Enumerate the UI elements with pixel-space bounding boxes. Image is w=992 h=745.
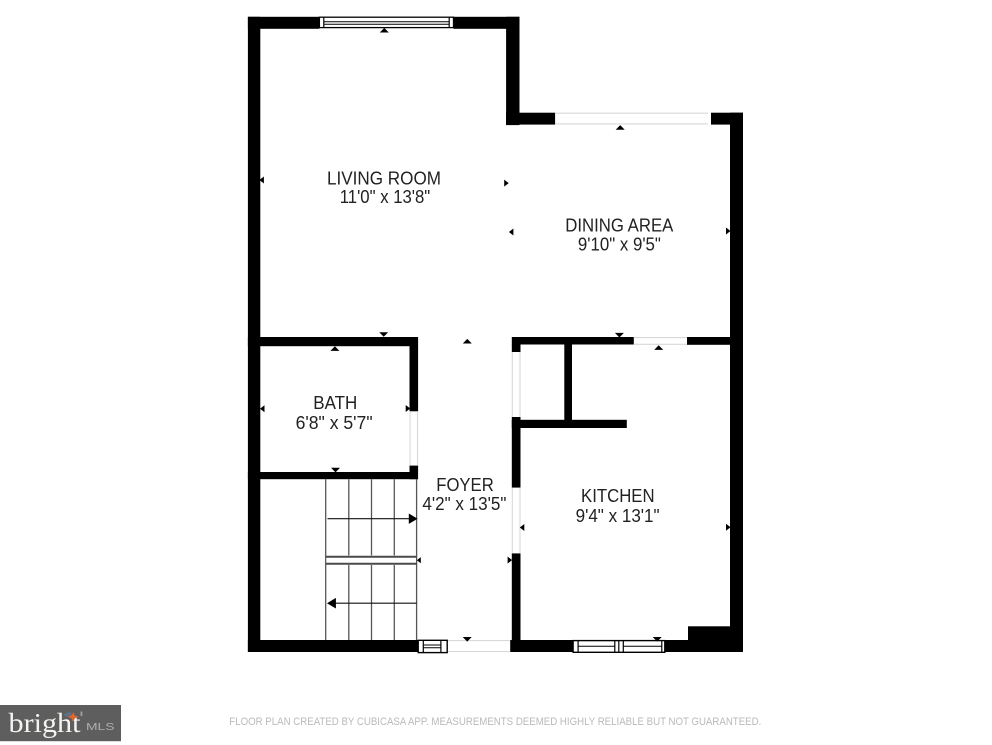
svg-text:4'2" x 13'5": 4'2" x 13'5" xyxy=(422,493,506,514)
svg-text:11'0" x 13'8": 11'0" x 13'8" xyxy=(340,186,431,207)
svg-text:FLOOR PLAN CREATED BY CUBICASA: FLOOR PLAN CREATED BY CUBICASA APP. MEAS… xyxy=(229,716,761,728)
svg-text:9'10" x 9'5": 9'10" x 9'5" xyxy=(578,233,661,254)
svg-text:MLS: MLS xyxy=(86,722,115,733)
svg-text:FOYER: FOYER xyxy=(436,474,494,495)
svg-text:KITCHEN: KITCHEN xyxy=(581,485,655,506)
svg-text:BATH: BATH xyxy=(313,392,357,413)
svg-text:9'4" x 13'1": 9'4" x 13'1" xyxy=(576,505,660,526)
svg-text:6'8" x 5'7": 6'8" x 5'7" xyxy=(296,412,373,433)
